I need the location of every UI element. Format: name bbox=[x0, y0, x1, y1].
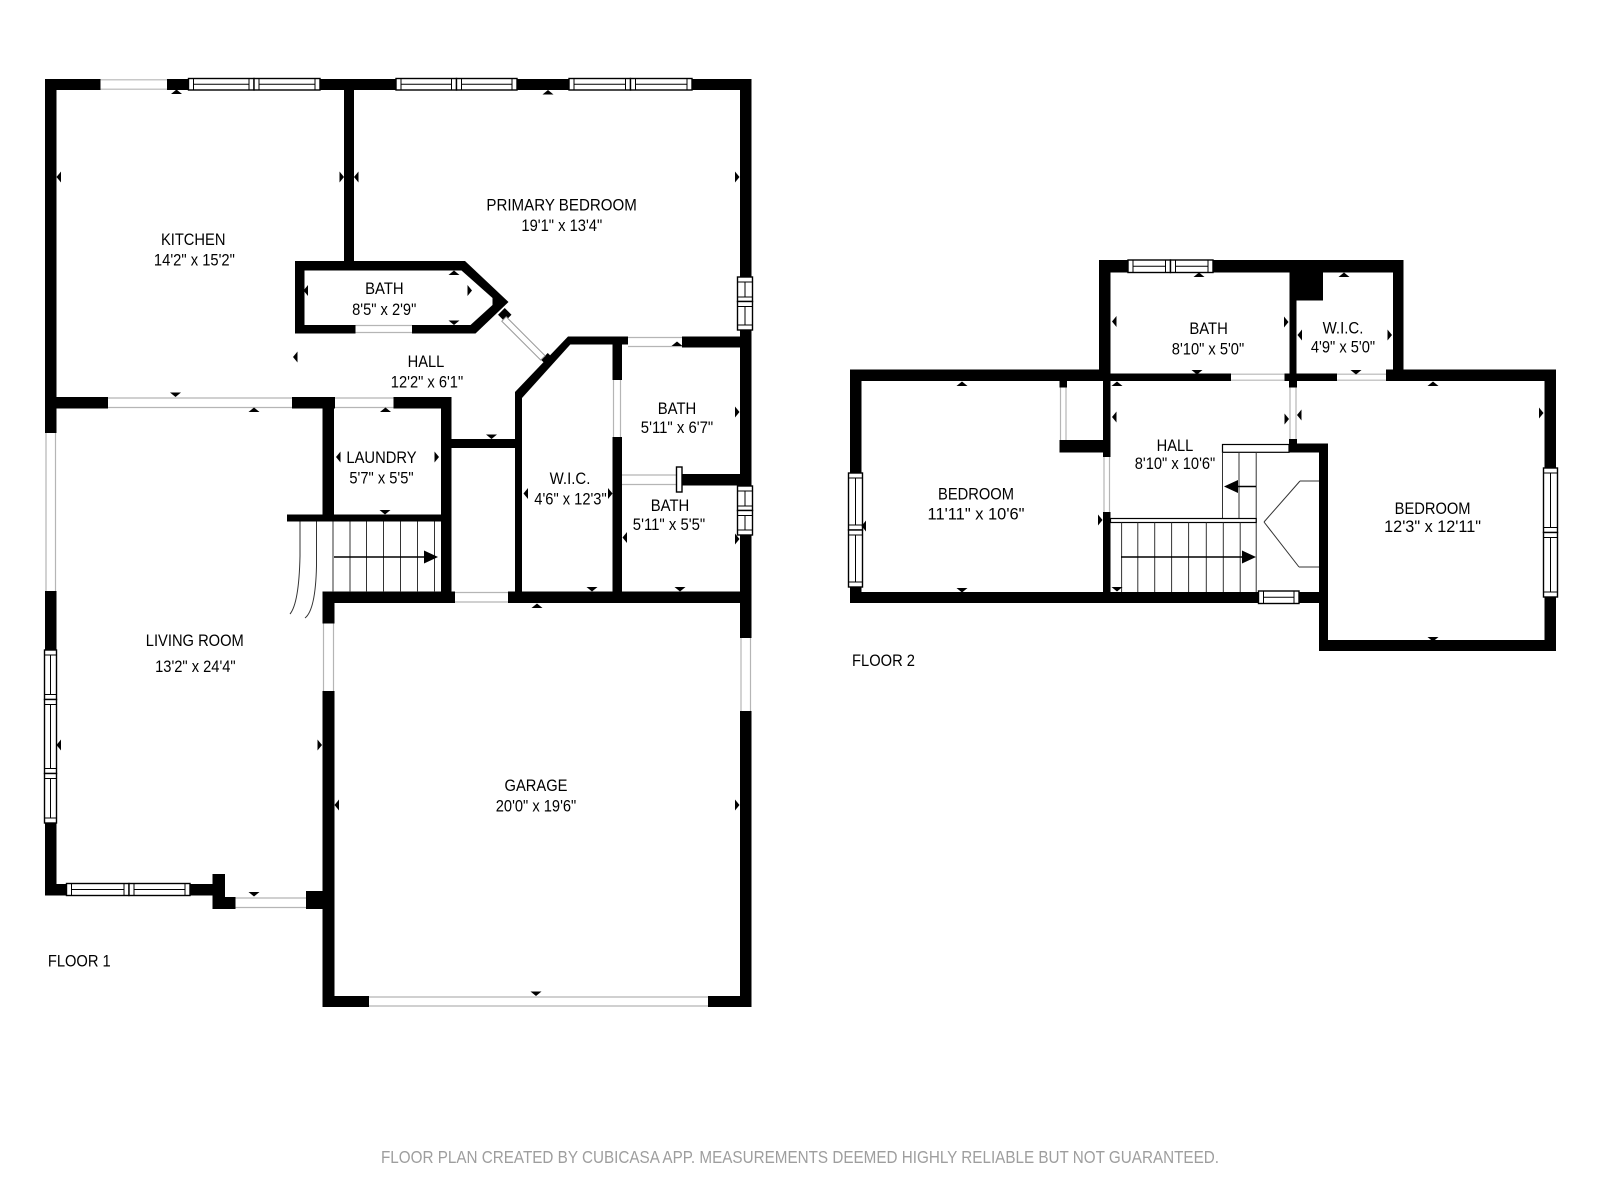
svg-text:BEDROOM: BEDROOM bbox=[938, 484, 1014, 503]
svg-text:5'11" x 6'7": 5'11" x 6'7" bbox=[641, 418, 713, 437]
svg-text:4'6" x 12'3": 4'6" x 12'3" bbox=[534, 490, 606, 509]
svg-text:LIVING ROOM: LIVING ROOM bbox=[146, 631, 244, 650]
svg-text:8'10" x 5'0": 8'10" x 5'0" bbox=[1172, 339, 1244, 358]
svg-text:4'9" x 5'0": 4'9" x 5'0" bbox=[1311, 338, 1375, 357]
svg-text:FLOOR 2: FLOOR 2 bbox=[852, 651, 915, 670]
svg-text:HALL: HALL bbox=[408, 352, 445, 371]
svg-text:BATH: BATH bbox=[365, 279, 404, 298]
svg-text:BATH: BATH bbox=[1189, 319, 1228, 338]
svg-text:8'5" x 2'9": 8'5" x 2'9" bbox=[352, 300, 416, 319]
svg-text:FLOOR 1: FLOOR 1 bbox=[48, 952, 111, 971]
svg-text:BATH: BATH bbox=[658, 399, 697, 418]
svg-text:14'2" x 15'2": 14'2" x 15'2" bbox=[154, 251, 235, 270]
svg-text:LAUNDRY: LAUNDRY bbox=[346, 448, 416, 467]
svg-text:FLOOR PLAN CREATED BY CUBICASA: FLOOR PLAN CREATED BY CUBICASA APP. MEAS… bbox=[381, 1147, 1219, 1167]
svg-text:13'2" x 24'4": 13'2" x 24'4" bbox=[155, 657, 236, 676]
svg-text:W.I.C.: W.I.C. bbox=[550, 469, 591, 488]
svg-text:PRIMARY BEDROOM: PRIMARY BEDROOM bbox=[486, 196, 636, 215]
svg-text:GARAGE: GARAGE bbox=[505, 776, 568, 795]
svg-text:19'1" x 13'4": 19'1" x 13'4" bbox=[521, 216, 602, 235]
svg-text:20'0" x 19'6": 20'0" x 19'6" bbox=[496, 797, 577, 816]
svg-text:KITCHEN: KITCHEN bbox=[161, 230, 226, 249]
svg-text:BEDROOM: BEDROOM bbox=[1395, 499, 1471, 518]
svg-text:5'7" x 5'5": 5'7" x 5'5" bbox=[349, 469, 413, 488]
svg-text:BATH: BATH bbox=[651, 496, 690, 515]
svg-text:12'2" x 6'1": 12'2" x 6'1" bbox=[391, 373, 463, 392]
svg-text:12'3" x 12'11": 12'3" x 12'11" bbox=[1384, 517, 1481, 536]
svg-text:W.I.C.: W.I.C. bbox=[1323, 319, 1364, 338]
svg-text:11'11" x 10'6": 11'11" x 10'6" bbox=[928, 504, 1025, 523]
svg-text:5'11" x 5'5": 5'11" x 5'5" bbox=[633, 515, 705, 534]
svg-text:8'10" x 10'6": 8'10" x 10'6" bbox=[1135, 454, 1216, 473]
svg-text:HALL: HALL bbox=[1157, 436, 1194, 455]
